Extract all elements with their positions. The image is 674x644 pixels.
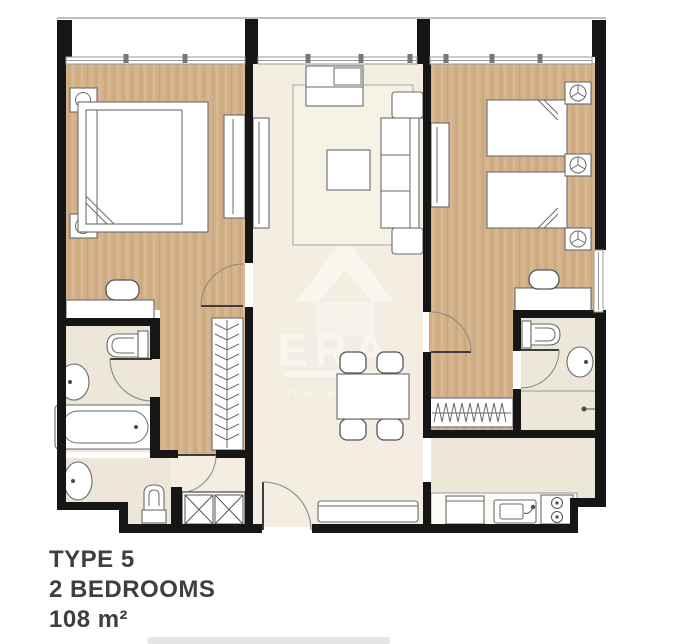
chair-icon	[340, 352, 366, 373]
wall-segment	[57, 20, 72, 57]
wall-segment	[595, 310, 606, 506]
wardrobe-icon	[212, 318, 243, 450]
plan-caption: TYPE 5 2 BEDROOMS 108 m²	[49, 545, 215, 635]
wall-segment	[245, 63, 253, 263]
plan-type-label: TYPE 5	[49, 545, 215, 575]
wall-segment	[216, 450, 253, 458]
chair-icon	[377, 419, 403, 440]
window	[594, 250, 603, 312]
wall-segment	[245, 19, 258, 64]
entry-console-icon	[318, 501, 418, 522]
stove-icon	[541, 495, 573, 524]
wall-segment	[57, 318, 160, 326]
wall-segment	[171, 487, 182, 533]
wall-segment	[423, 352, 431, 438]
desk-icon	[515, 288, 591, 312]
wall-segment	[119, 524, 262, 533]
window	[66, 57, 245, 64]
dresser-icon	[224, 115, 245, 218]
toilet-icon	[522, 321, 560, 348]
toilet-icon	[142, 485, 166, 523]
watermark-brand: ERA	[277, 324, 392, 376]
next-plan-preview-edge	[147, 637, 390, 644]
dining-table-icon	[337, 374, 409, 419]
wall-segment	[57, 52, 66, 510]
sink-icon	[567, 347, 593, 377]
wall-segment	[417, 19, 430, 64]
kitchen-fixtures	[431, 493, 577, 525]
wall-segment	[513, 310, 605, 318]
chair-icon	[377, 352, 403, 373]
nightstand-icon	[565, 82, 591, 104]
toilet-icon	[107, 331, 148, 358]
chair-icon	[340, 419, 366, 440]
fridge-icon	[446, 496, 484, 524]
sink-icon	[64, 462, 92, 500]
window	[430, 57, 592, 64]
floor-plan-page: ERA REAL ESTATE	[0, 0, 674, 644]
wall-segment	[423, 63, 431, 312]
wall-segment	[595, 57, 606, 250]
tv-console-icon	[306, 66, 363, 106]
wall-segment	[150, 397, 160, 450]
bathtub-icon	[55, 405, 155, 449]
wall-segment	[423, 430, 605, 438]
plan-bedrooms-label: 2 BEDROOMS	[49, 575, 215, 605]
double-bed-icon	[78, 102, 208, 232]
coffee-table-icon	[327, 150, 370, 190]
wall-segment	[57, 502, 127, 510]
wall-segment	[423, 482, 431, 533]
wall-segment	[245, 307, 253, 533]
window	[258, 57, 417, 64]
dresser-icon	[431, 123, 449, 207]
twin-bed-icon	[487, 172, 567, 228]
shoe-cabinet-icon	[182, 492, 245, 527]
nightstand-icon	[565, 228, 591, 250]
media-cabinet-icon	[253, 118, 269, 228]
wall-segment	[592, 20, 606, 57]
kitchen-sink-icon	[494, 500, 536, 523]
stool-icon	[529, 270, 559, 289]
wall-segment	[312, 524, 578, 533]
wardrobe-icon	[430, 398, 513, 427]
twin-bed-icon	[487, 100, 567, 156]
plan-area-label: 108 m²	[49, 605, 215, 635]
stool-icon	[106, 280, 139, 300]
nightstand-icon	[565, 154, 591, 176]
wall-segment	[150, 450, 178, 458]
wall-segment	[150, 318, 160, 359]
